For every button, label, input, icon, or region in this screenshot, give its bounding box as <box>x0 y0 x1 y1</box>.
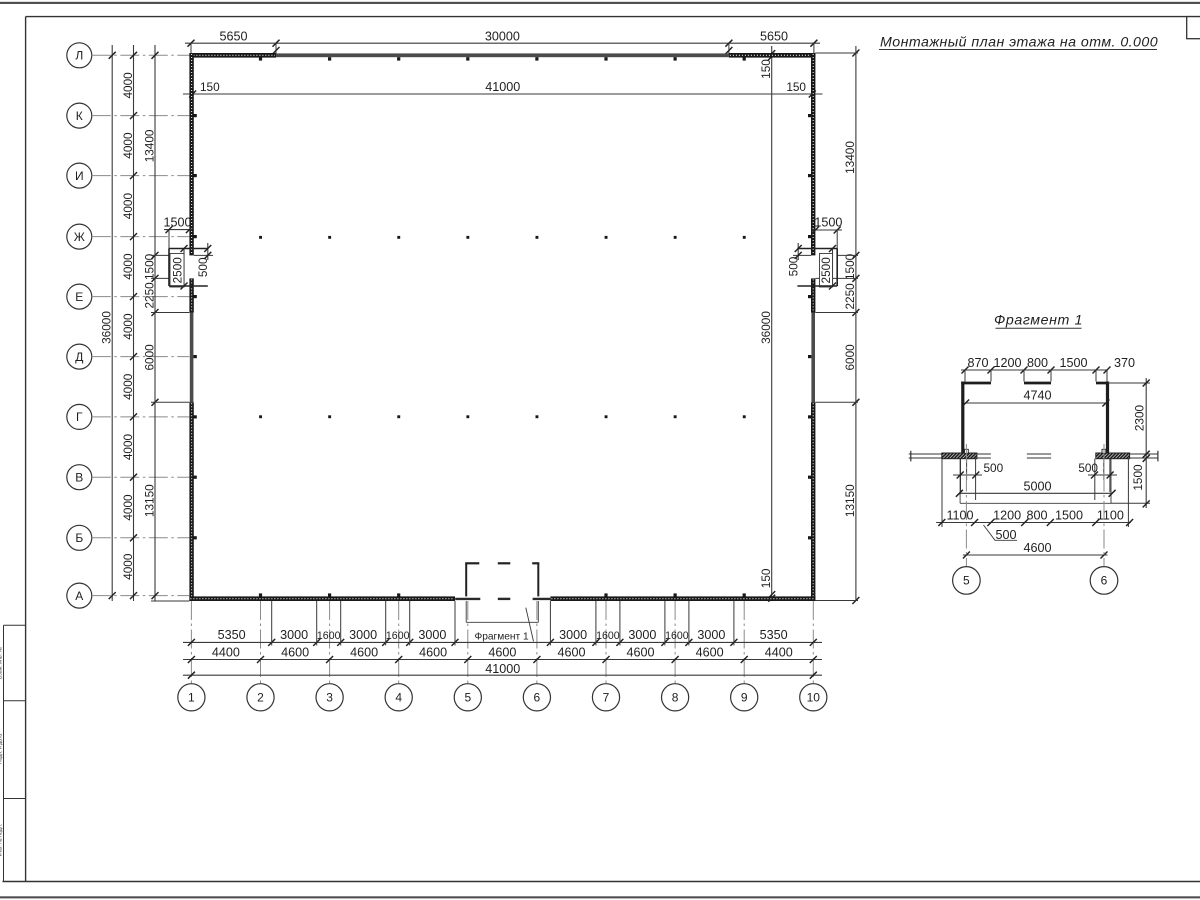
svg-text:800: 800 <box>1026 509 1047 523</box>
svg-text:Б: Б <box>75 531 83 545</box>
svg-text:1600: 1600 <box>386 630 410 642</box>
svg-text:30000: 30000 <box>485 29 520 43</box>
svg-text:4600: 4600 <box>1023 541 1051 555</box>
svg-text:4600: 4600 <box>419 645 447 659</box>
svg-text:5350: 5350 <box>760 628 788 642</box>
svg-text:2500: 2500 <box>819 257 833 284</box>
svg-text:500: 500 <box>196 257 210 277</box>
svg-text:6: 6 <box>1101 574 1108 588</box>
svg-text:Взам. инв. №: Взам. инв. № <box>0 646 4 679</box>
svg-text:4000: 4000 <box>121 193 135 220</box>
svg-text:4600: 4600 <box>557 645 585 659</box>
svg-text:13150: 13150 <box>843 484 857 517</box>
svg-text:3: 3 <box>326 691 333 705</box>
svg-text:1500: 1500 <box>142 253 156 280</box>
svg-text:1600: 1600 <box>665 630 689 642</box>
svg-text:4400: 4400 <box>765 645 793 659</box>
svg-text:1600: 1600 <box>317 630 341 642</box>
svg-text:Л: Л <box>75 49 83 63</box>
svg-text:4600: 4600 <box>488 645 516 659</box>
svg-text:8: 8 <box>672 691 679 705</box>
svg-text:5650: 5650 <box>760 29 788 43</box>
svg-text:3000: 3000 <box>280 628 308 642</box>
svg-text:13150: 13150 <box>142 484 156 517</box>
svg-text:36000: 36000 <box>759 311 773 344</box>
svg-text:1100: 1100 <box>946 509 973 523</box>
svg-text:370: 370 <box>1114 356 1135 370</box>
svg-text:4000: 4000 <box>121 373 135 400</box>
svg-text:3000: 3000 <box>349 628 377 642</box>
svg-text:В: В <box>75 471 83 485</box>
svg-text:41000: 41000 <box>485 662 520 676</box>
svg-text:870: 870 <box>967 356 988 370</box>
svg-text:150: 150 <box>759 59 773 79</box>
svg-text:4600: 4600 <box>350 645 378 659</box>
svg-text:1500: 1500 <box>1131 464 1145 491</box>
svg-text:Монтажный план этажа на отм. 0: Монтажный план этажа на отм. 0.000 <box>880 35 1158 51</box>
svg-text:Ж: Ж <box>74 230 85 244</box>
svg-text:6000: 6000 <box>843 344 857 371</box>
svg-text:5: 5 <box>464 691 471 705</box>
svg-text:3000: 3000 <box>628 628 656 642</box>
svg-text:Инв. № подл.: Инв. № подл. <box>0 824 4 856</box>
svg-text:36000: 36000 <box>100 311 114 344</box>
svg-text:Е: Е <box>75 290 83 304</box>
svg-text:4000: 4000 <box>121 253 135 280</box>
svg-text:2300: 2300 <box>1133 404 1147 431</box>
svg-text:4000: 4000 <box>121 132 135 159</box>
svg-text:5650: 5650 <box>219 29 247 43</box>
svg-text:13400: 13400 <box>142 129 156 162</box>
svg-text:1200: 1200 <box>993 356 1021 370</box>
svg-text:500: 500 <box>1078 461 1098 475</box>
svg-text:4: 4 <box>395 691 402 705</box>
svg-text:150: 150 <box>786 80 806 94</box>
svg-text:2250: 2250 <box>142 282 156 309</box>
svg-text:4000: 4000 <box>121 433 135 460</box>
svg-text:7: 7 <box>603 691 610 705</box>
svg-text:2: 2 <box>257 691 264 705</box>
svg-text:4740: 4740 <box>1023 389 1051 403</box>
svg-text:500: 500 <box>786 256 800 276</box>
svg-text:3000: 3000 <box>418 628 446 642</box>
svg-text:150: 150 <box>200 80 220 94</box>
svg-text:2250: 2250 <box>843 283 857 310</box>
svg-text:150: 150 <box>759 568 773 588</box>
svg-text:6000: 6000 <box>142 344 156 371</box>
svg-text:4600: 4600 <box>626 645 654 659</box>
svg-text:500: 500 <box>995 528 1016 542</box>
svg-text:5350: 5350 <box>218 628 246 642</box>
svg-text:9: 9 <box>741 691 748 705</box>
svg-text:1600: 1600 <box>596 630 620 642</box>
svg-text:3000: 3000 <box>559 628 587 642</box>
svg-text:И: И <box>75 169 84 183</box>
svg-text:Д: Д <box>75 350 83 364</box>
svg-text:500: 500 <box>984 461 1004 475</box>
svg-text:4000: 4000 <box>121 494 135 521</box>
svg-text:1500: 1500 <box>843 253 857 280</box>
svg-text:2500: 2500 <box>170 257 184 284</box>
svg-text:1100: 1100 <box>1097 509 1124 523</box>
svg-text:3000: 3000 <box>697 628 725 642</box>
svg-text:10: 10 <box>807 691 821 705</box>
svg-text:1500: 1500 <box>163 215 191 229</box>
svg-text:К: К <box>76 109 83 123</box>
svg-text:41000: 41000 <box>485 80 520 94</box>
svg-text:Фрагмент 1: Фрагмент 1 <box>994 313 1083 329</box>
svg-text:5000: 5000 <box>1023 479 1051 493</box>
svg-text:1500: 1500 <box>1059 356 1087 370</box>
svg-text:13400: 13400 <box>843 141 857 174</box>
svg-text:4000: 4000 <box>121 72 135 99</box>
svg-text:1200: 1200 <box>993 509 1021 523</box>
svg-text:6: 6 <box>534 691 541 705</box>
svg-text:Фрагмент 1: Фрагмент 1 <box>474 632 529 643</box>
svg-text:4000: 4000 <box>121 553 135 580</box>
svg-text:4600: 4600 <box>696 645 724 659</box>
svg-text:1500: 1500 <box>814 215 842 229</box>
svg-text:Г: Г <box>76 410 83 424</box>
svg-text:1: 1 <box>188 691 195 705</box>
svg-text:800: 800 <box>1027 356 1048 370</box>
svg-text:Подп. и дата: Подп. и дата <box>0 734 4 765</box>
svg-text:5: 5 <box>963 574 970 588</box>
svg-text:4400: 4400 <box>212 645 240 659</box>
svg-text:4600: 4600 <box>281 645 309 659</box>
svg-text:4000: 4000 <box>121 313 135 340</box>
svg-text:А: А <box>75 589 83 603</box>
svg-text:1500: 1500 <box>1055 509 1083 523</box>
